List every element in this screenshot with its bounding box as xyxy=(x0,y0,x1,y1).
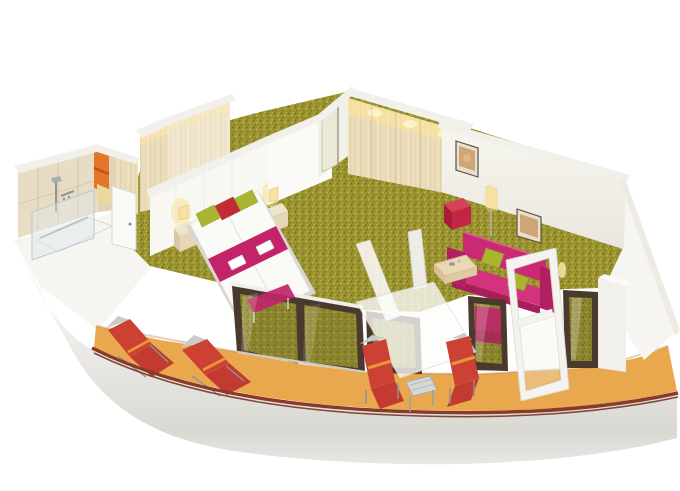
art-smudge xyxy=(463,154,471,162)
table-decor xyxy=(449,262,455,266)
bathroom xyxy=(14,144,140,260)
bathroom-door xyxy=(112,186,136,250)
picture-frame-1 xyxy=(456,141,478,177)
suite-floorplan-svg: Isometric cutaway rendering of a wedge-s… xyxy=(0,0,680,491)
ceiling-spotlight xyxy=(403,120,417,128)
table-decor xyxy=(457,259,461,262)
faucet-knob xyxy=(68,196,70,198)
right-window xyxy=(563,290,598,368)
ceiling-spotlight xyxy=(368,109,382,117)
door-handle xyxy=(128,222,131,225)
block-face xyxy=(598,278,626,372)
lamp-shade xyxy=(486,186,497,210)
wall-sconce xyxy=(558,262,566,278)
cube-ottoman xyxy=(444,198,471,230)
floorplan-image: Isometric cutaway rendering of a wedge-s… xyxy=(0,0,680,491)
